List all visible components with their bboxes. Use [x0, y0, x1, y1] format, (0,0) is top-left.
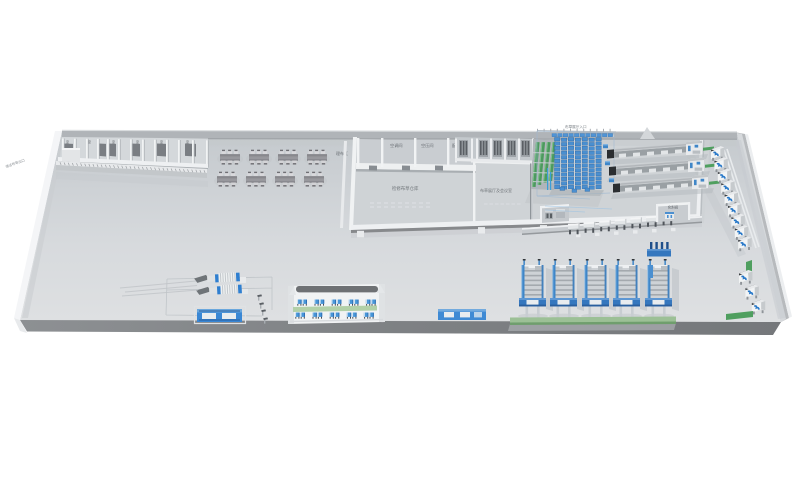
svg-text:空调间: 空调间 [390, 142, 403, 149]
svg-text:室: 室 [186, 139, 189, 144]
svg-text:室: 室 [112, 139, 115, 144]
svg-text:室: 室 [160, 139, 163, 144]
svg-text:室: 室 [136, 139, 139, 144]
svg-text:布草展厅及会议室: 布草展厅及会议室 [480, 187, 512, 193]
svg-text:布草展厅入口: 布草展厅入口 [565, 124, 587, 129]
svg-text:室: 室 [88, 139, 91, 144]
svg-text:室: 室 [66, 139, 69, 144]
svg-text:空压间: 空压间 [421, 142, 434, 149]
svg-text:化料间: 化料间 [668, 205, 679, 210]
svg-text:检修布草仓库: 检修布草仓库 [392, 185, 419, 192]
